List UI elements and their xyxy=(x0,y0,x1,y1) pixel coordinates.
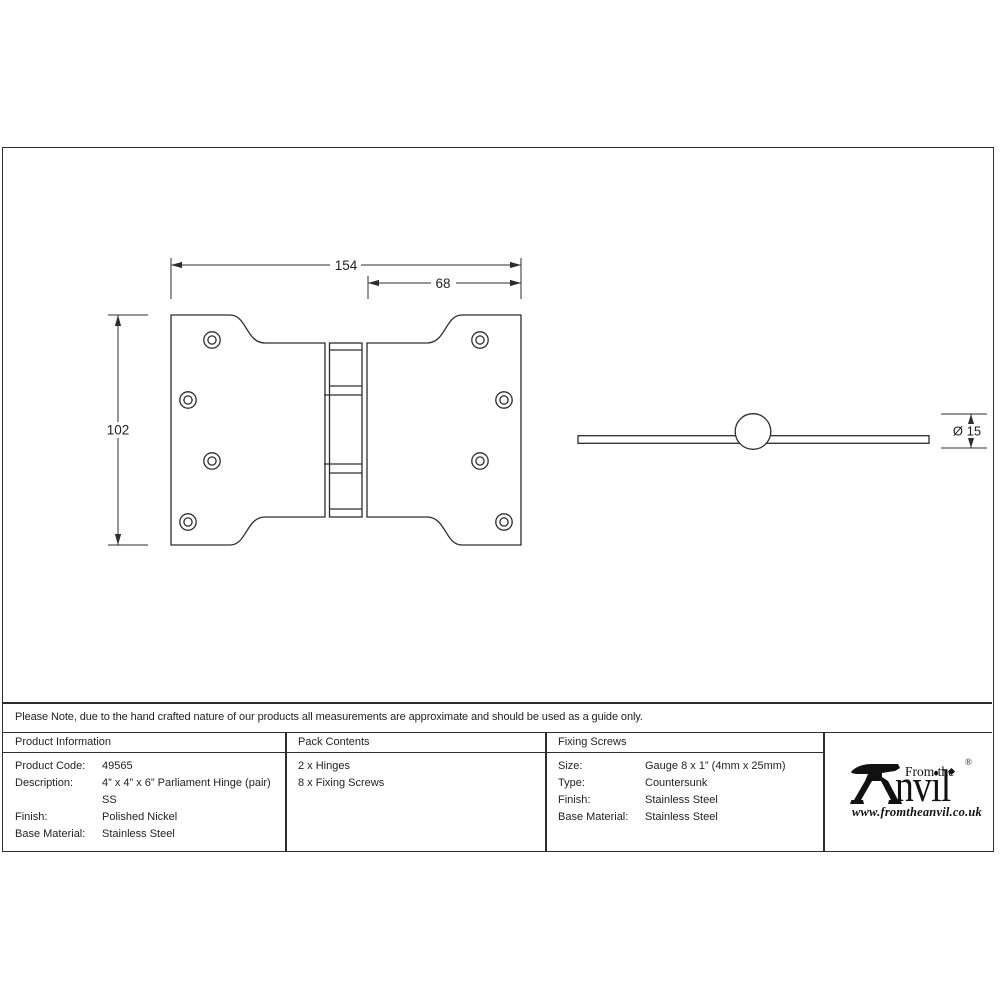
registered-trademark-icon: ® xyxy=(965,757,972,767)
pack-contents-item: 2 x Hinges xyxy=(298,758,540,775)
row-value-line: Polished Nickel xyxy=(102,809,281,826)
row-value-line: Stainless Steel xyxy=(645,809,818,826)
brand-logo: nvil From the ® www.fromtheanvil.co.uk xyxy=(824,733,995,851)
measurement-note-text: Please Note, due to the hand crafted nat… xyxy=(15,711,643,723)
row-value-line: Countersunk xyxy=(645,775,818,792)
row-label: Finish: xyxy=(15,809,102,826)
header-fixing-screws: Fixing Screws xyxy=(546,733,822,752)
row-value-line: 4” x 4” x 6” Parliament Hinge (pair) xyxy=(102,775,281,792)
pack-contents-cell: 2 x Hinges8 x Fixing Screws xyxy=(286,752,544,852)
table-row: Finish:Polished Nickel xyxy=(15,809,281,826)
row-value-line: 49565 xyxy=(102,758,281,775)
table-row: Base Material:Stainless Steel xyxy=(15,826,281,843)
row-label: Type: xyxy=(558,775,645,792)
spec-sheet-page: 154 68 102 Ø 15 Please Note, due to the … xyxy=(0,0,1000,1000)
row-value: Countersunk xyxy=(645,775,818,792)
measurement-note: Please Note, due to the hand crafted nat… xyxy=(4,703,992,732)
row-label: Finish: xyxy=(558,792,645,809)
table-row: Type:Countersunk xyxy=(558,775,818,792)
row-label: Description: xyxy=(15,775,102,792)
table-row: Product Code:49565 xyxy=(15,758,281,775)
row-value-line: Gauge 8 x 1” (4mm x 25mm) xyxy=(645,758,818,775)
row-value-line: Stainless Steel xyxy=(645,792,818,809)
table-row: Finish:Stainless Steel xyxy=(558,792,818,809)
row-value: Stainless Steel xyxy=(645,792,818,809)
row-value: Stainless Steel xyxy=(645,809,818,826)
header-product-information: Product Information xyxy=(4,733,285,752)
row-label: Base Material: xyxy=(15,826,102,843)
row-value-line: SS xyxy=(102,792,281,809)
table-row: Base Material:Stainless Steel xyxy=(558,809,818,826)
row-value: 4” x 4” x 6” Parliament Hinge (pair)SS xyxy=(102,775,281,809)
header-pack-contents: Pack Contents xyxy=(286,733,544,752)
table-row: Size:Gauge 8 x 1” (4mm x 25mm) xyxy=(558,758,818,775)
row-label: Product Code: xyxy=(15,758,102,775)
pack-contents-item: 8 x Fixing Screws xyxy=(298,775,540,792)
fixing-screws-cell: Size:Gauge 8 x 1” (4mm x 25mm)Type:Count… xyxy=(546,752,822,852)
table-row: Description:4” x 4” x 6” Parliament Hing… xyxy=(15,775,281,809)
row-value: Polished Nickel xyxy=(102,809,281,826)
logo-website: www.fromtheanvil.co.uk xyxy=(852,805,982,820)
row-value-line: Stainless Steel xyxy=(102,826,281,843)
product-information-cell: Product Code:49565Description:4” x 4” x … xyxy=(4,752,285,852)
row-value: Stainless Steel xyxy=(102,826,281,843)
row-value: Gauge 8 x 1” (4mm x 25mm) xyxy=(645,758,818,775)
row-label: Size: xyxy=(558,758,645,775)
logo-prefix: From the xyxy=(905,764,954,780)
row-value: 49565 xyxy=(102,758,281,775)
row-label: Base Material: xyxy=(558,809,645,826)
